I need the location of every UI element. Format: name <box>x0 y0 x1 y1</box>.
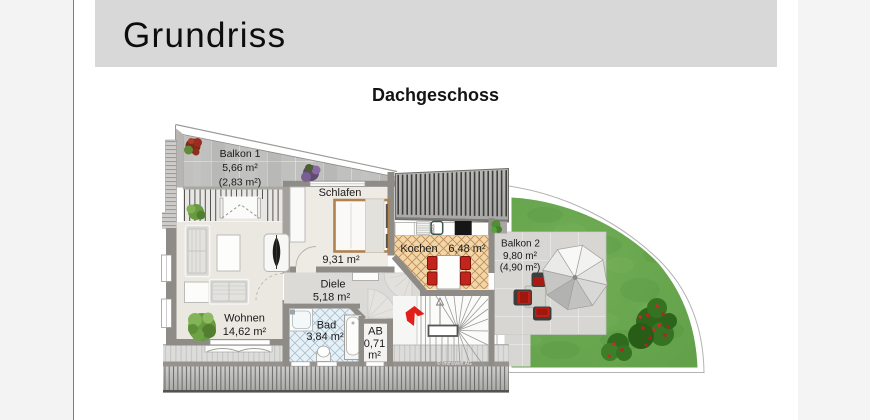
svg-text:3,84 m²: 3,84 m² <box>306 331 344 343</box>
svg-text:Diele: Diele <box>320 279 345 291</box>
svg-text:m²: m² <box>368 350 381 362</box>
svg-text:14,62 m²: 14,62 m² <box>223 326 267 338</box>
svg-text:© Immowelt AG: © Immowelt AG <box>437 360 472 367</box>
svg-text:Bad: Bad <box>317 320 337 332</box>
svg-text:9,31 m²: 9,31 m² <box>322 254 360 266</box>
svg-text:5,66 m²: 5,66 m² <box>222 162 258 174</box>
svg-text:Schlafen: Schlafen <box>319 187 362 199</box>
svg-text:(4,90 m²): (4,90 m²) <box>500 263 541 274</box>
svg-text:0,71: 0,71 <box>364 338 385 350</box>
svg-text:(2,83 m²): (2,83 m²) <box>219 177 262 189</box>
svg-text:6,48 m²: 6,48 m² <box>448 243 486 255</box>
svg-text:5,18 m²: 5,18 m² <box>313 292 351 304</box>
svg-text:Wohnen: Wohnen <box>224 313 265 325</box>
svg-text:Balkon 2: Balkon 2 <box>501 239 540 250</box>
svg-text:Kochen: Kochen <box>400 243 437 255</box>
svg-text:AB: AB <box>368 326 383 338</box>
svg-text:9,80 m²: 9,80 m² <box>503 251 538 262</box>
svg-text:Balkon 1: Balkon 1 <box>220 148 261 160</box>
